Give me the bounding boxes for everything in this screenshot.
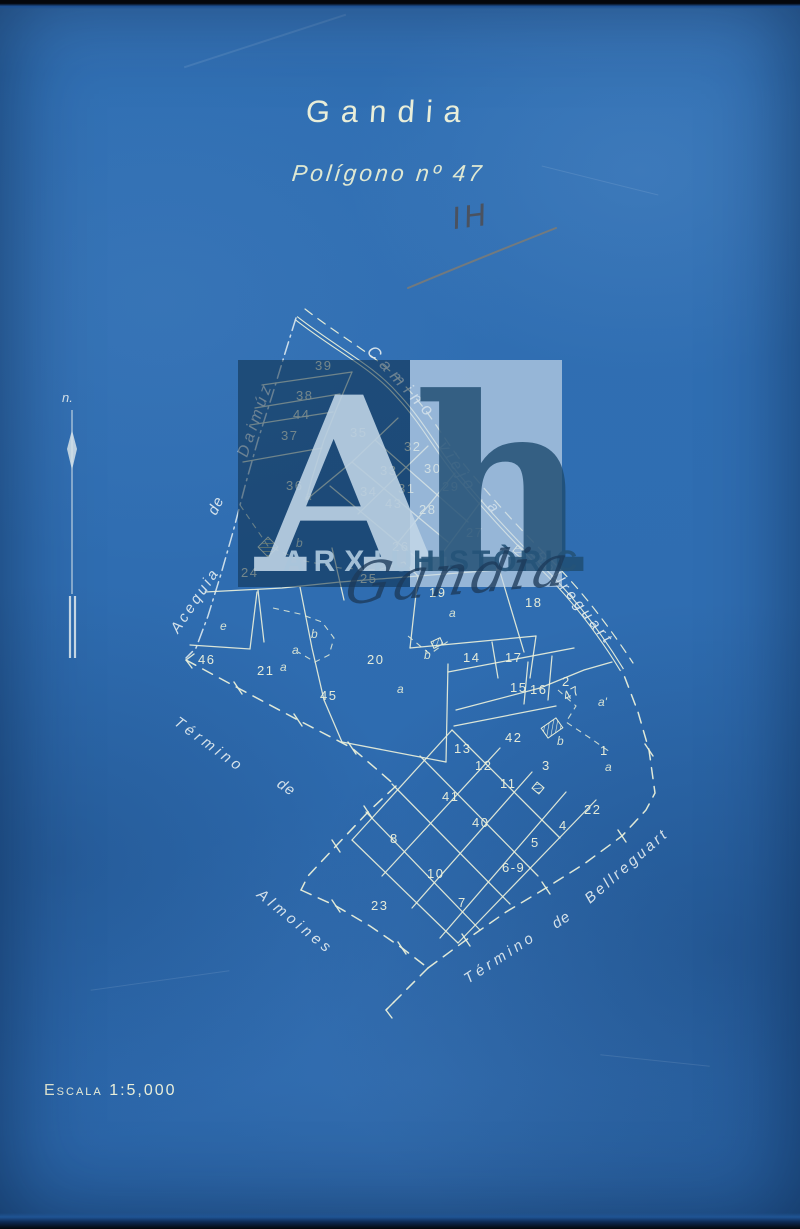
subparcel-letter: a' xyxy=(598,695,608,709)
parcel-number: 28 xyxy=(419,502,436,517)
parcel-number: 10 xyxy=(427,866,444,881)
boundary-label: Bellreguart xyxy=(531,548,618,649)
parcel-number: 8 xyxy=(390,831,399,846)
parcel-number: 42 xyxy=(505,730,522,745)
boundary-termino xyxy=(186,654,655,1018)
parcel-number: 4 xyxy=(559,818,568,833)
subparcel-letter: a xyxy=(305,489,312,503)
boundary-label: de xyxy=(274,775,299,800)
subparcel-letter: a xyxy=(449,606,456,620)
parcel-number: 26 xyxy=(392,539,409,554)
parcel-number: 25 xyxy=(360,571,377,586)
subparcel-letter: a xyxy=(280,660,287,674)
building-symbol xyxy=(431,638,443,649)
parcel-number: 16 xyxy=(530,682,547,697)
north-label: n. xyxy=(62,390,73,405)
pencil-scratch xyxy=(408,228,556,288)
parcel-number: 38 xyxy=(296,388,313,403)
parcel-number: 6-9 xyxy=(502,860,525,875)
parcel-number: 12 xyxy=(475,758,492,773)
building-symbol xyxy=(532,782,544,794)
parcel-number: 29 xyxy=(442,479,459,494)
subparcel-letter: a xyxy=(397,682,404,696)
parcel-number: 44 xyxy=(293,407,310,422)
parcel-number: 43 xyxy=(385,496,402,511)
parcel-number: 20 xyxy=(367,652,384,667)
boundary-label: Término xyxy=(461,928,540,987)
parcel-number: 17 xyxy=(505,650,522,665)
paper-edge-top xyxy=(0,0,800,9)
boundary-label: Camino xyxy=(363,342,441,424)
subparcel-letter: e xyxy=(220,619,227,633)
parcel-number: 14 xyxy=(463,650,480,665)
parcel-number: 27 xyxy=(466,525,483,540)
subparcel-letter: b xyxy=(424,648,431,662)
parcel-number: 5 xyxy=(531,835,540,850)
parcel-number: 13 xyxy=(454,741,471,756)
parcel-number: 22 xyxy=(584,802,601,817)
parcel-number: 23 xyxy=(371,898,388,913)
parcel-grid xyxy=(190,372,612,943)
parcel-number: 31 xyxy=(398,481,415,496)
parcel-number: 34 xyxy=(360,484,377,499)
subparcel-letter: b xyxy=(296,536,303,550)
parcel-number: 18 xyxy=(525,595,542,610)
parcel-number: 40 xyxy=(472,815,489,830)
parcel-number: 7 xyxy=(458,895,467,910)
parcel-number: 37 xyxy=(281,428,298,443)
boundary-label: Término xyxy=(171,713,248,776)
parcel-number: 19 xyxy=(429,585,446,600)
north-arrow: n. xyxy=(62,390,77,658)
paper-edge-bottom xyxy=(0,1213,800,1229)
parcel-number: 24 xyxy=(241,565,258,580)
parcel-number: 11 xyxy=(500,776,517,791)
parcel-number: 3 xyxy=(542,758,551,773)
boundary-label: Acequia xyxy=(167,564,224,637)
boundary-label: Bellreguart xyxy=(581,825,672,907)
parcel-number: 32 xyxy=(404,439,421,454)
parcel-number: 36 xyxy=(286,478,303,493)
subparcel-letter: b xyxy=(557,734,564,748)
cadastral-map: n. xyxy=(0,0,800,1229)
scale-label: Escala 1:5,000 xyxy=(44,1082,177,1100)
boundary-label: Almoines xyxy=(253,885,337,958)
building-symbol xyxy=(258,537,278,557)
cyanotype-sheet: n. xyxy=(0,0,800,1229)
subparcel-letter: a xyxy=(292,643,299,657)
parcel-number: 45 xyxy=(320,688,337,703)
map-parcel-labels: 3938443735363233302931344328272625241918… xyxy=(198,358,609,913)
parcel-number: 21 xyxy=(257,663,274,678)
boundary-label: de xyxy=(549,908,574,932)
parcel-number: 39 xyxy=(315,358,332,373)
parcel-number: 15 xyxy=(510,680,527,695)
boundary-label: de xyxy=(204,494,227,518)
parcel-number: 46 xyxy=(198,652,215,667)
subparcel-letter: a xyxy=(605,760,612,774)
subparcel-letter: b xyxy=(311,627,318,641)
parcel-number: 30 xyxy=(424,461,441,476)
parcel-number: 33 xyxy=(380,463,397,478)
north-needle xyxy=(67,430,77,470)
parcel-number: 41 xyxy=(442,789,459,804)
boundary-acequia-daimuz xyxy=(186,318,296,658)
building-symbol xyxy=(513,545,527,559)
handwritten-archive-mark: IH xyxy=(452,198,490,238)
parcel-number: 1 xyxy=(600,743,609,758)
parcel-number: 35 xyxy=(350,425,367,440)
